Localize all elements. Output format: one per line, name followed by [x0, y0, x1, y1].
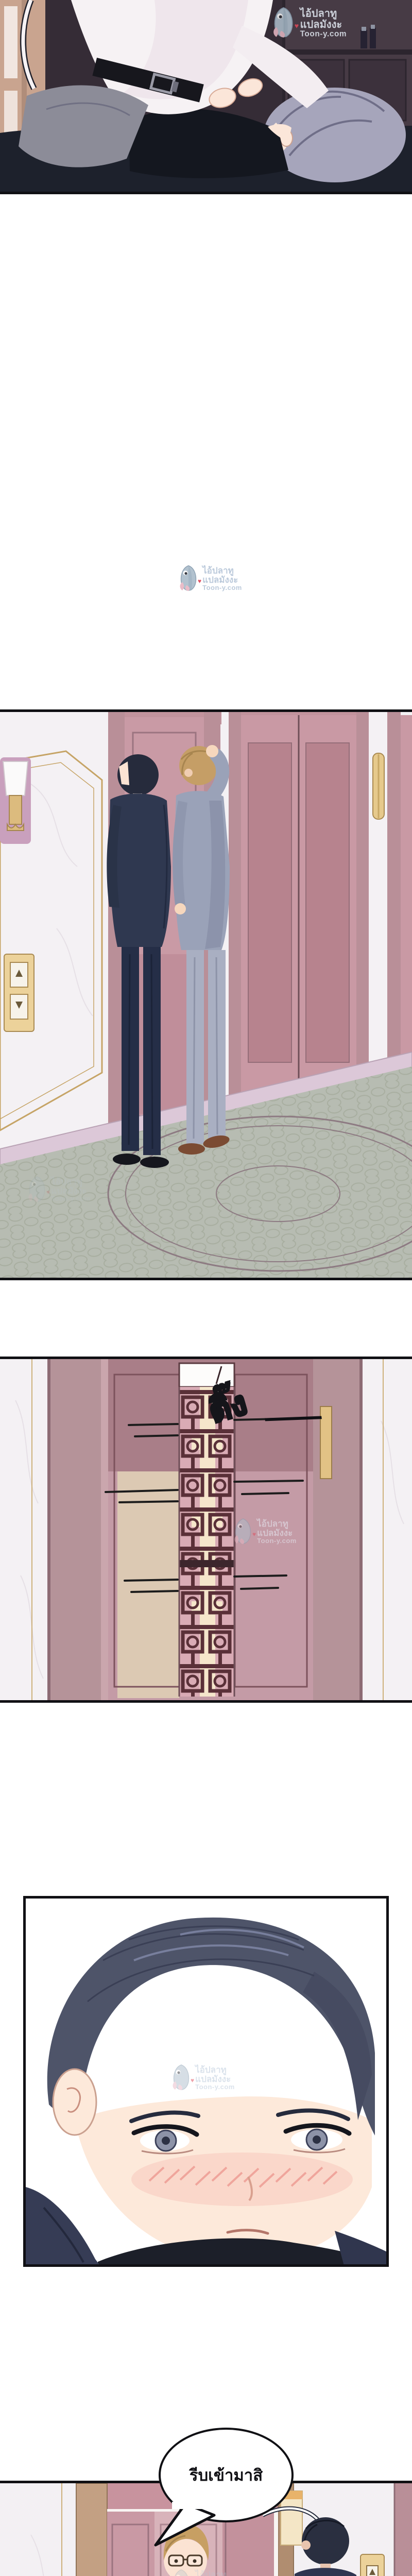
hallway-art	[0, 712, 412, 1280]
panel-face-closeup	[23, 1896, 389, 2267]
ear	[53, 2069, 96, 2135]
speech-bubble-text: รีบเข้ามาสิ	[190, 2462, 263, 2488]
translator-watermark: ♥ ไอ้ปลาทู แปลมังงะ Toon-y.com	[178, 565, 242, 591]
wall-sconce-lamp	[0, 757, 31, 844]
speech-bubble-tail	[151, 2502, 218, 2547]
face-art	[26, 1899, 389, 2267]
lattice-door-pattern	[179, 1390, 234, 1697]
webtoon-strip[interactable]: ติ๊ง — รีบเข้ามาสิ ♥ ไอ้ปลาทู แปลมังงะ T…	[0, 0, 412, 2576]
watermark-text: ไอ้ปลาทู แปลมังงะ Toon-y.com	[202, 566, 242, 591]
fish-mascot-icon	[178, 565, 199, 591]
bedroom-art	[0, 0, 412, 192]
elevator-call-panel	[360, 2554, 384, 2576]
panel-elevator-ding	[0, 1357, 412, 1703]
elevator-art	[0, 1359, 412, 1703]
gold-light-fixture	[320, 1406, 332, 1479]
sfx-ding-dash: —	[263, 1398, 324, 1435]
elevator-call-panel	[4, 954, 34, 1031]
panel-bedroom-scene	[0, 0, 412, 194]
gold-wall-lamp	[373, 753, 384, 819]
panel-hallway-waiting	[0, 709, 412, 1280]
heart-icon: ♥	[198, 578, 201, 584]
